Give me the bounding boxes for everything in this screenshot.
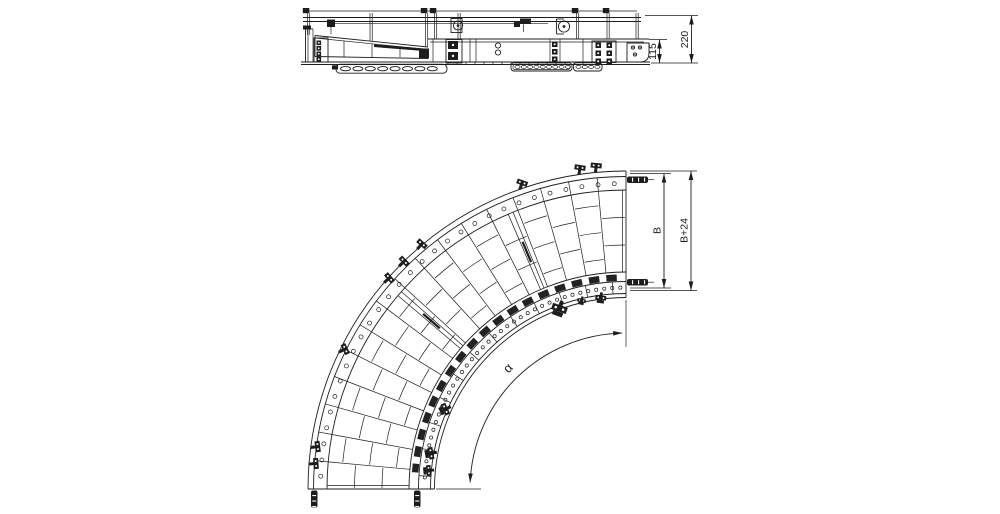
dim-label-115: 115 (647, 43, 659, 60)
inner-bolt-holes (423, 286, 622, 479)
angle-arc (470, 333, 622, 482)
curved-conveyor-drawing: 115 220 B B+24 α (0, 0, 1000, 514)
outer-flange (308, 171, 626, 489)
chain-guide (415, 278, 617, 473)
curve-end-top (623, 171, 655, 298)
clamp-bracket (424, 446, 438, 460)
plan-dimensions (436, 171, 697, 489)
clamp-bracket (595, 292, 607, 304)
dim-label-alpha: α (500, 360, 516, 376)
side-elevation-view (301, 8, 698, 73)
clamp-bracket (437, 401, 453, 417)
outer-bolt-holes (319, 182, 617, 478)
clamp-bracket (549, 298, 569, 318)
technical-drawing-page: 115 220 B B+24 α (0, 0, 1000, 514)
curve-end-bottom (308, 486, 435, 508)
dim-label-B24: B+24 (679, 218, 691, 243)
clamp-bracket (515, 178, 529, 191)
clamp-bracket (308, 458, 319, 470)
clamp-bracket (423, 465, 435, 477)
clamp-bracket (577, 296, 587, 306)
dim-label-220: 220 (679, 31, 691, 49)
plan-view-curve (308, 162, 697, 507)
dim-label-B: B (652, 227, 664, 234)
